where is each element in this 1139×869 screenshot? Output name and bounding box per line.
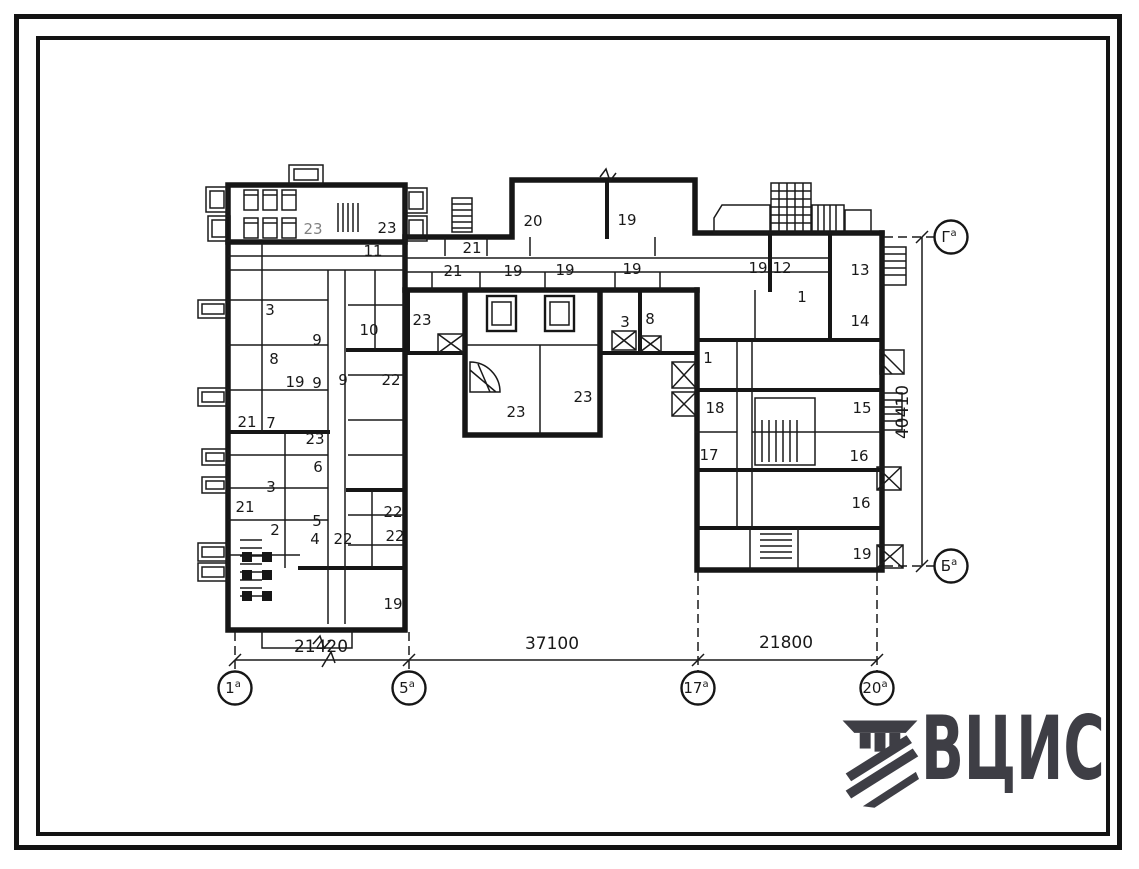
vcis-logo-icon (841, 714, 919, 808)
axis-label: 17а (683, 679, 708, 697)
room-label: 22 (381, 371, 400, 389)
room-label: 9 (338, 371, 348, 389)
room-label: 17 (699, 446, 718, 464)
room-label: 19 (617, 211, 636, 229)
room-label: 21 (235, 498, 254, 516)
room-label: 13 (850, 261, 869, 279)
room-label: 21 (462, 239, 481, 257)
room-label: 23 (303, 220, 322, 238)
room-label: 21 (443, 262, 462, 280)
room-label: 16 (849, 447, 868, 465)
room-label: 1 (797, 288, 807, 306)
room-label: 22 (383, 503, 402, 521)
room-label: 19 (503, 262, 522, 280)
dimension-label: 21800 (759, 633, 813, 653)
room-label: 14 (850, 312, 869, 330)
building-outer-walls (228, 180, 882, 630)
room-label: 4 (310, 530, 320, 548)
room-label: 10 (359, 321, 378, 339)
room-label: 22 (385, 527, 404, 545)
room-label: 19 (285, 373, 304, 391)
room-label: 19 (748, 259, 767, 277)
room-label: 18 (705, 399, 724, 417)
room-label: 3 (266, 478, 276, 496)
room-label: 6 (313, 458, 323, 476)
vcis-logo-text: ВЦИС (921, 705, 1105, 793)
room-label: 16 (851, 494, 870, 512)
axis-label: Ба (941, 557, 957, 575)
room-label: 9 (312, 331, 322, 349)
dimension-label: 37100 (525, 634, 579, 654)
dimension-label: 40410 (893, 385, 913, 439)
room-label: 23 (573, 388, 592, 406)
room-label: 19 (622, 260, 641, 278)
room-label: 19 (383, 595, 402, 613)
room-label: 8 (269, 350, 279, 368)
room-label: 19 (852, 545, 871, 563)
room-label: 19 (555, 261, 574, 279)
room-label: 20 (523, 212, 542, 230)
room-label: 7 (266, 414, 276, 432)
room-label: 3 (265, 301, 275, 319)
room-label: 23 (412, 311, 431, 329)
axis-label: 1а (225, 679, 241, 697)
axis-label: 5а (399, 679, 415, 697)
room-label: 3 (620, 313, 630, 331)
room-label: 12 (772, 259, 791, 277)
room-label: 23 (377, 219, 396, 237)
room-label: 23 (506, 403, 525, 421)
room-label: 21 (237, 413, 256, 431)
vcis-logo: ВЦИС (841, 714, 1139, 808)
room-label: 23 (305, 430, 324, 448)
room-label: 8 (645, 310, 655, 328)
building-thick-partitions (228, 180, 882, 568)
room-label: 9 (312, 374, 322, 392)
room-label: 2 (270, 521, 280, 539)
drawing-sheet: 2323112121191919201919121311423382323118… (0, 0, 1139, 869)
axis-label: Га (941, 228, 956, 246)
room-label: 11 (363, 242, 382, 260)
dimension-label: 21420 (294, 637, 348, 657)
room-label: 15 (852, 399, 871, 417)
room-label: 1 (703, 349, 713, 367)
room-label: 22 (333, 530, 352, 548)
axis-label: 20а (862, 679, 887, 697)
room-label: 5 (312, 512, 322, 530)
